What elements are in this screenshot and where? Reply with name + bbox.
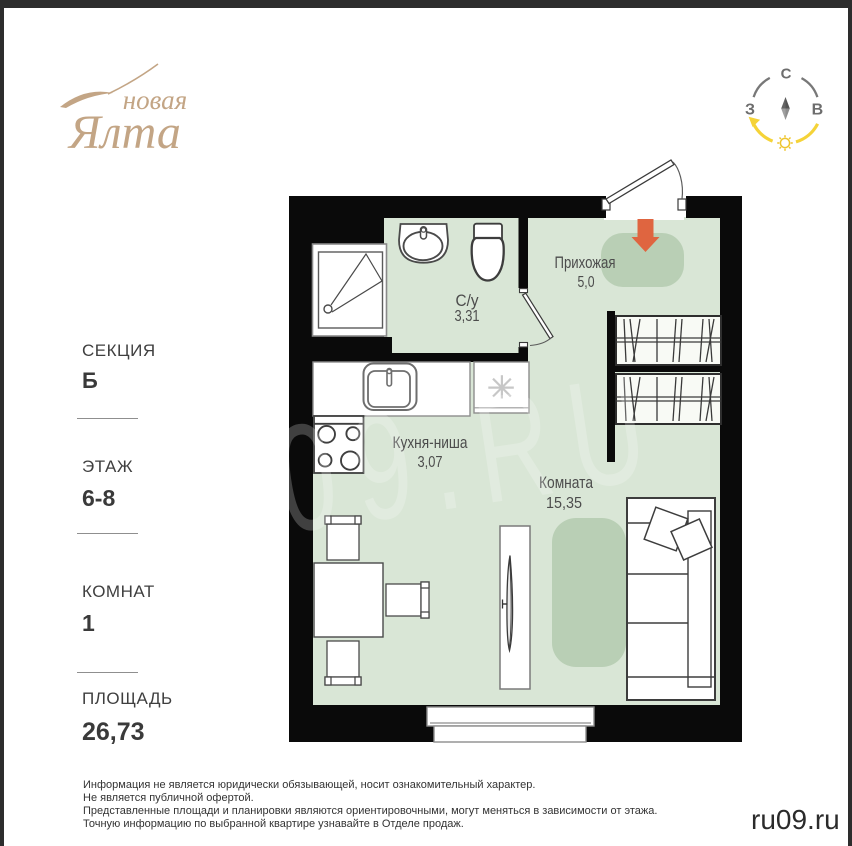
svg-text:Прихожая: Прихожая bbox=[555, 253, 616, 272]
svg-text:5,0: 5,0 bbox=[578, 274, 595, 291]
svg-text:3,31: 3,31 bbox=[455, 308, 480, 325]
